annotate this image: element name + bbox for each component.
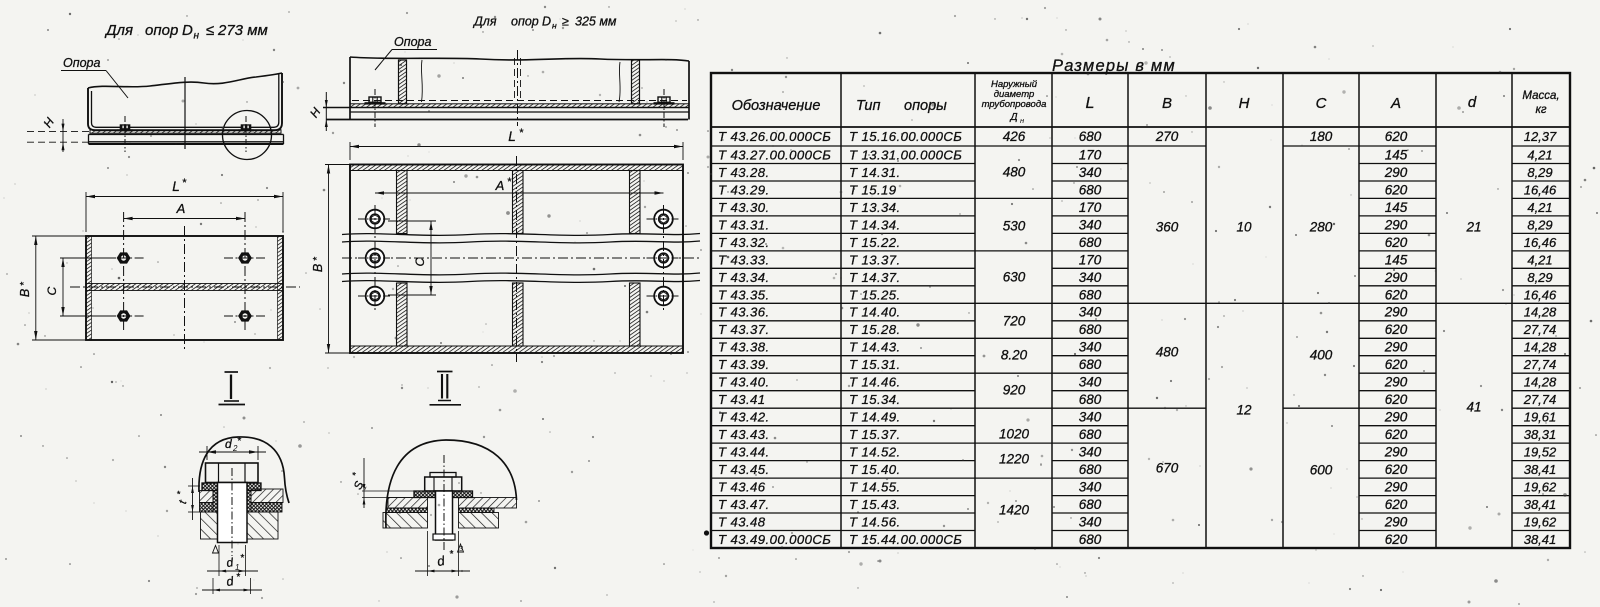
svg-text:630: 630 [1003,270,1026,285]
svg-text:В: В [311,264,325,272]
svg-text:14,28: 14,28 [1524,305,1557,320]
svg-text:Т 43.41: Т 43.41 [718,392,766,407]
svg-text:d: d [1468,94,1477,111]
svg-text:14,28: 14,28 [1524,340,1557,355]
svg-text:Т 43.48: Т 43.48 [718,515,766,530]
svg-text:Т 14.52.: Т 14.52. [849,445,901,460]
svg-text:В: В [1162,95,1172,112]
svg-text:Т 43.36.: Т 43.36. [718,305,770,320]
svg-text:Т 14.56.: Т 14.56. [849,515,901,530]
svg-text:н: н [1020,116,1024,125]
svg-text:н: н [552,21,557,31]
svg-text:Т 13.34.: Т 13.34. [849,200,901,215]
svg-text:4,21: 4,21 [1527,200,1552,215]
svg-text:*: * [507,176,512,188]
svg-text:680: 680 [1079,182,1102,197]
svg-text:290: 290 [1384,480,1408,495]
svg-text:С: С [413,257,427,266]
svg-text:290: 290 [1384,515,1408,530]
svg-text:680: 680 [1079,462,1102,477]
svg-text:620: 620 [1385,287,1408,302]
svg-text:170: 170 [1079,200,1102,215]
svg-text:Т 43.34.: Т 43.34. [718,270,770,285]
svg-text:н: н [194,31,200,42]
svg-text:400: 400 [1310,348,1333,363]
svg-text:19,62: 19,62 [1524,515,1557,530]
svg-text:170: 170 [1079,252,1102,267]
svg-text:1020: 1020 [999,427,1030,442]
svg-text:8.20: 8.20 [1001,348,1028,363]
svg-text:920: 920 [1003,383,1026,398]
svg-text:Т 15.40.: Т 15.40. [849,462,901,477]
svg-text:290: 290 [1384,445,1408,460]
svg-text:Опора: Опора [63,56,101,70]
svg-text:8,29: 8,29 [1527,217,1552,232]
svg-text:D: D [182,22,193,39]
svg-text:Т 13.31.00.000СБ: Т 13.31.00.000СБ [849,147,962,162]
svg-text:трубопровода: трубопровода [982,99,1047,110]
svg-text:600: 600 [1310,463,1333,478]
svg-text:270: 270 [1155,129,1179,144]
svg-text:720: 720 [1003,314,1026,329]
svg-text:170: 170 [1079,147,1102,162]
svg-text:А: А [176,201,186,216]
svg-text:340: 340 [1079,305,1102,320]
svg-text:38,31: 38,31 [1524,427,1557,442]
svg-text:Т 43.47.: Т 43.47. [718,497,770,512]
svg-text:Т 15.28.: Т 15.28. [849,322,901,337]
svg-text:d: d [225,437,232,451]
svg-text:3: 3 [459,546,463,553]
svg-text:620: 620 [1385,182,1408,197]
svg-text:Для: Для [104,22,133,39]
svg-text:Т 43.40.: Т 43.40. [718,375,770,390]
svg-text:620: 620 [1385,427,1408,442]
svg-text:А: А [495,178,505,193]
svg-text:290: 290 [1384,375,1408,390]
svg-text:В: В [18,289,32,297]
svg-text:16,46: 16,46 [1524,235,1557,250]
svg-text:27,74: 27,74 [1523,322,1557,337]
svg-text:620: 620 [1385,235,1408,250]
svg-text:360: 360 [1156,220,1179,235]
svg-text:Опора: Опора [394,35,432,49]
svg-text:340: 340 [1079,445,1102,460]
svg-text:290: 290 [1384,340,1408,355]
svg-text:290: 290 [1384,305,1408,320]
svg-text:145: 145 [1385,252,1408,267]
svg-text:С: С [1316,95,1327,112]
svg-text:145: 145 [1385,200,1408,215]
svg-text:Т 43.39.: Т 43.39. [718,357,770,372]
svg-text:Т 43.33.: Т 43.33. [718,252,770,267]
svg-text:426: 426 [1003,129,1026,144]
svg-text:Т 43.29.: Т 43.29. [718,182,770,197]
svg-text:Т 14.43.: Т 14.43. [849,340,901,355]
svg-text:670: 670 [1156,461,1179,476]
svg-text:145: 145 [1385,147,1408,162]
svg-text:Т 43.35.: Т 43.35. [718,287,770,302]
svg-text:340: 340 [1079,375,1102,390]
svg-text:Т 14.55.: Т 14.55. [849,480,901,495]
svg-text:Т 43.32.: Т 43.32. [718,235,770,250]
svg-text:Т 43.26.00.000СБ: Т 43.26.00.000СБ [718,129,831,144]
svg-text:680: 680 [1079,235,1102,250]
svg-text:Т 43.42.: Т 43.42. [718,410,770,425]
svg-text:1220: 1220 [999,452,1030,467]
svg-text:Т 43.43.: Т 43.43. [718,427,770,442]
svg-text:27,74: 27,74 [1523,357,1557,372]
svg-text:L: L [508,129,516,144]
svg-text:340: 340 [1079,340,1102,355]
svg-text:530: 530 [1003,219,1026,234]
svg-text:680: 680 [1079,357,1102,372]
svg-text:38,41: 38,41 [1524,497,1557,512]
svg-text:19,62: 19,62 [1524,480,1557,495]
svg-text:180: 180 [1310,129,1333,144]
svg-text:680: 680 [1079,427,1102,442]
svg-text:≤: ≤ [206,22,214,39]
svg-text:Т 14.46.: Т 14.46. [849,375,901,390]
svg-text:620: 620 [1385,322,1408,337]
svg-text:38,41: 38,41 [1524,532,1557,547]
svg-text:8,29: 8,29 [1527,165,1552,180]
svg-text:620: 620 [1385,357,1408,372]
svg-text:19,61: 19,61 [1524,410,1557,425]
svg-text:10: 10 [1236,220,1252,235]
svg-text:4,21: 4,21 [1527,252,1552,267]
svg-text:340: 340 [1079,165,1102,180]
svg-text:Т 14.40.: Т 14.40. [849,305,901,320]
svg-text:Т 15.37.: Т 15.37. [849,427,901,442]
svg-text:опоры: опоры [904,98,947,114]
svg-text:27,74: 27,74 [1523,392,1557,407]
svg-text:Т 43.37.: Т 43.37. [718,322,770,337]
svg-text:Т 14.31.: Т 14.31. [849,165,901,180]
svg-text:273 мм: 273 мм [217,22,268,39]
svg-text:680: 680 [1079,129,1102,144]
svg-text:12,37: 12,37 [1524,129,1557,144]
svg-text:680: 680 [1079,392,1102,407]
svg-text:16,46: 16,46 [1524,287,1557,302]
svg-text:290: 290 [1384,270,1408,285]
svg-text:680: 680 [1079,532,1102,547]
svg-text:21: 21 [1465,220,1481,235]
svg-text:А: А [1390,95,1401,112]
svg-text:8,29: 8,29 [1527,270,1552,285]
svg-text:L: L [172,179,180,194]
svg-text:4,21: 4,21 [1527,147,1552,162]
svg-text:Т 13.37.: Т 13.37. [849,252,901,267]
svg-text:290: 290 [1384,410,1408,425]
svg-text:290: 290 [1384,165,1408,180]
svg-text:620: 620 [1385,532,1408,547]
svg-text:Т 15.22.: Т 15.22. [849,235,901,250]
svg-text:620: 620 [1385,129,1408,144]
svg-text:Т 15.34.: Т 15.34. [849,392,901,407]
svg-text:Масса,: Масса, [1522,90,1559,102]
svg-text:Т 43.46: Т 43.46 [718,480,766,495]
svg-text:Т 14.49.: Т 14.49. [849,410,901,425]
svg-text:12: 12 [1236,403,1252,418]
svg-text:*: * [519,127,524,139]
svg-text:14,28: 14,28 [1524,375,1557,390]
svg-text:Т 14.37.: Т 14.37. [849,270,901,285]
svg-text:340: 340 [1079,480,1102,495]
svg-text:опор: опор [511,15,539,29]
svg-text:Т 43.49.00.000СБ: Т 43.49.00.000СБ [718,532,831,547]
svg-text:38,41: 38,41 [1524,462,1557,477]
svg-text:≥: ≥ [562,15,569,29]
svg-text:620: 620 [1385,392,1408,407]
svg-text:D: D [542,15,551,29]
svg-text:Т 43.31.: Т 43.31. [718,217,770,232]
svg-text:680: 680 [1079,287,1102,302]
svg-text:Т 15.43.: Т 15.43. [849,497,901,512]
svg-text:680: 680 [1079,497,1102,512]
svg-text:Т 43.30.: Т 43.30. [718,200,770,215]
svg-text:Тип: Тип [856,98,880,114]
svg-text:Н: Н [1239,95,1250,112]
svg-text:290: 290 [1384,217,1408,232]
svg-text:340: 340 [1079,270,1102,285]
svg-text:Т 43.44.: Т 43.44. [718,445,770,460]
svg-text:опор: опор [145,22,178,39]
svg-text:340: 340 [1079,217,1102,232]
svg-text:С: С [45,286,59,295]
svg-text:L: L [1086,95,1095,112]
svg-text:Т 15.19: Т 15.19 [849,182,897,197]
svg-text:Т 15.16.00.000СБ: Т 15.16.00.000СБ [849,129,962,144]
svg-text:280: 280 [1309,220,1333,235]
svg-text:Д: Д [1009,112,1017,123]
svg-text:Т 43.27.00.000СБ: Т 43.27.00.000СБ [718,147,831,162]
svg-text:1: 1 [235,563,239,572]
svg-text:Т 43.28.: Т 43.28. [718,165,770,180]
svg-text:340: 340 [1079,410,1102,425]
svg-text:480: 480 [1156,345,1179,360]
svg-text:Т 43.45.: Т 43.45. [718,462,770,477]
svg-text:Т 15.31.: Т 15.31. [849,357,901,372]
svg-text:41: 41 [1466,400,1481,415]
svg-text:680: 680 [1079,322,1102,337]
svg-text:Для: Для [472,15,497,29]
svg-text:Т 15.25.: Т 15.25. [849,287,901,302]
svg-text:620: 620 [1385,462,1408,477]
svg-text:325 мм: 325 мм [575,15,617,29]
svg-text:340: 340 [1079,515,1102,530]
svg-text:19,52: 19,52 [1524,445,1557,460]
svg-text:Т 43.38.: Т 43.38. [718,340,770,355]
svg-text:1420: 1420 [999,503,1030,518]
svg-text:Обозначение: Обозначение [732,98,821,114]
svg-text:Т 14.34.: Т 14.34. [849,217,901,232]
svg-text:16,46: 16,46 [1524,182,1557,197]
svg-text:480: 480 [1003,165,1026,180]
svg-text:620: 620 [1385,497,1408,512]
svg-text:*: * [182,177,187,189]
svg-text:кг: кг [1535,104,1546,116]
